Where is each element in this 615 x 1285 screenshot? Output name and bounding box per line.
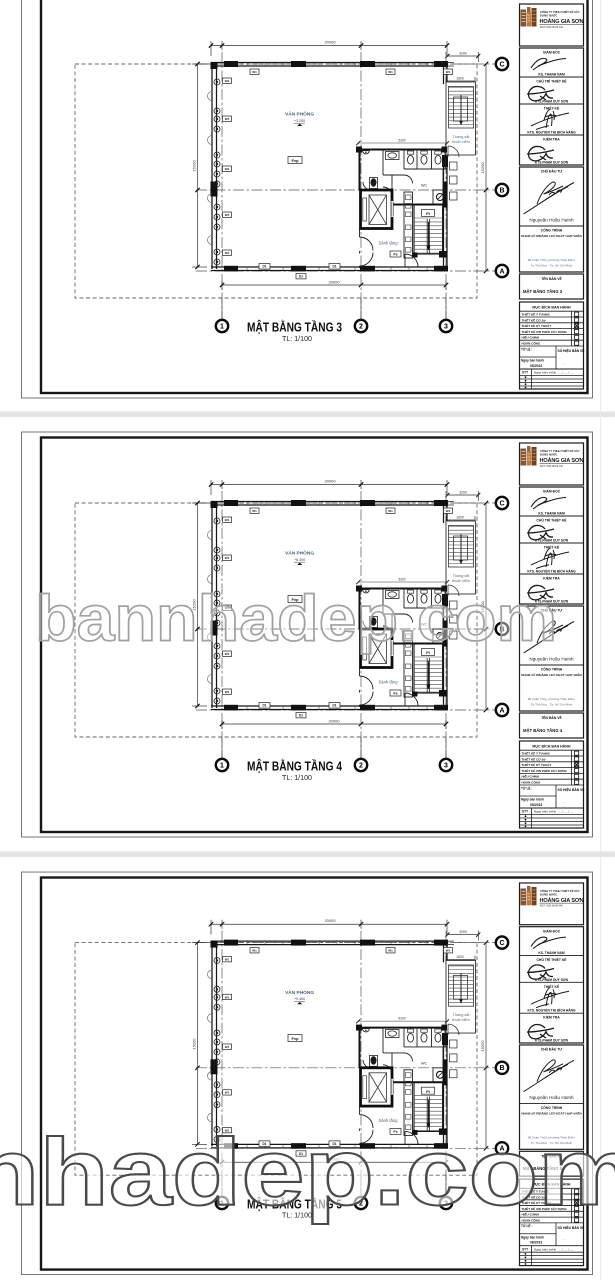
svg-text:TL: 1/100: TL: 1/100 xyxy=(282,773,312,782)
svg-text:+3.200: +3.200 xyxy=(294,119,305,123)
svg-text:MẬT BẰNG TẦNG 3: MẬT BẰNG TẦNG 3 xyxy=(247,320,342,335)
svg-text:MẬT BẰNG TẦNG 3: MẬT BẰNG TẦNG 3 xyxy=(523,289,563,294)
svg-text:+9.400: +9.400 xyxy=(294,997,305,1001)
svg-text:MẬT BẰNG TẦNG 4: MẬT BẰNG TẦNG 4 xyxy=(523,728,563,733)
svg-text:MẬT BẰNG TẦNG 4: MẬT BẰNG TẦNG 4 xyxy=(247,759,343,774)
svg-text:+6.300: +6.300 xyxy=(294,558,305,562)
svg-text:nhadep.com: nhadep.com xyxy=(0,1120,615,1226)
svg-text:TL: 1/100: TL: 1/100 xyxy=(282,334,312,343)
svg-text:bannhadep.com: bannhadep.com xyxy=(35,582,557,655)
